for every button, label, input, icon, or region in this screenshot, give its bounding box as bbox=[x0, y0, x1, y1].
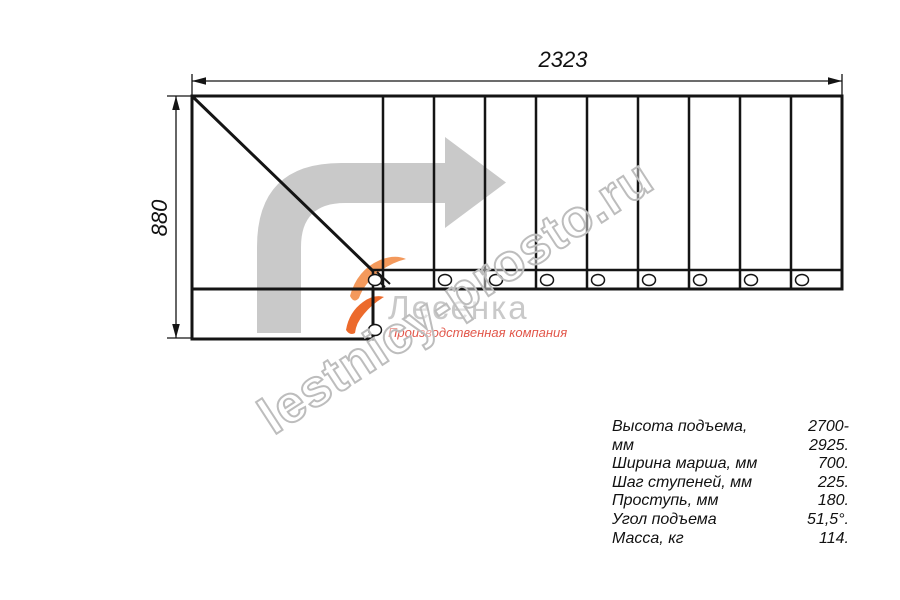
spec-label: Масса, кг bbox=[612, 530, 684, 549]
spec-label: Ширина марша, мм bbox=[612, 455, 757, 474]
winder-diagonal-line bbox=[193, 97, 373, 271]
spec-row: Высота подъема, мм 2700-2925. bbox=[612, 418, 849, 455]
bolt-hole-circle bbox=[745, 275, 758, 286]
spec-row: Масса, кг 114. bbox=[612, 530, 849, 549]
spec-row: Проступь, мм 180. bbox=[612, 492, 849, 511]
bolt-hole-circle bbox=[369, 275, 382, 286]
spec-label: Высота подъема, мм bbox=[612, 418, 770, 455]
specs-table: Высота подъема, мм 2700-2925. Ширина мар… bbox=[612, 418, 849, 548]
spec-label: Проступь, мм bbox=[612, 492, 718, 511]
spec-row: Ширина марша, мм 700. bbox=[612, 455, 849, 474]
width-dimension-line bbox=[192, 74, 842, 96]
spec-value: 2700-2925. bbox=[770, 418, 849, 455]
bolt-hole-circle bbox=[796, 275, 809, 286]
height-dimension-label: 880 bbox=[147, 190, 173, 246]
spec-value: 700. bbox=[818, 455, 849, 474]
spec-label: Шаг ступеней, мм bbox=[612, 474, 752, 493]
spec-row: Угол подъема 51,5°. bbox=[612, 511, 849, 530]
spec-value: 51,5°. bbox=[807, 511, 849, 530]
width-dimension-label: 2323 bbox=[508, 47, 618, 73]
spec-row: Шаг ступеней, мм 225. bbox=[612, 474, 849, 493]
spec-value: 225. bbox=[818, 474, 849, 493]
spec-value: 114. bbox=[819, 530, 849, 549]
spec-value: 180. bbox=[818, 492, 849, 511]
bolt-hole-circle bbox=[694, 275, 707, 286]
bolt-hole-circle bbox=[643, 275, 656, 286]
bolt-hole-circle bbox=[592, 275, 605, 286]
spec-label: Угол подъема bbox=[612, 511, 717, 530]
